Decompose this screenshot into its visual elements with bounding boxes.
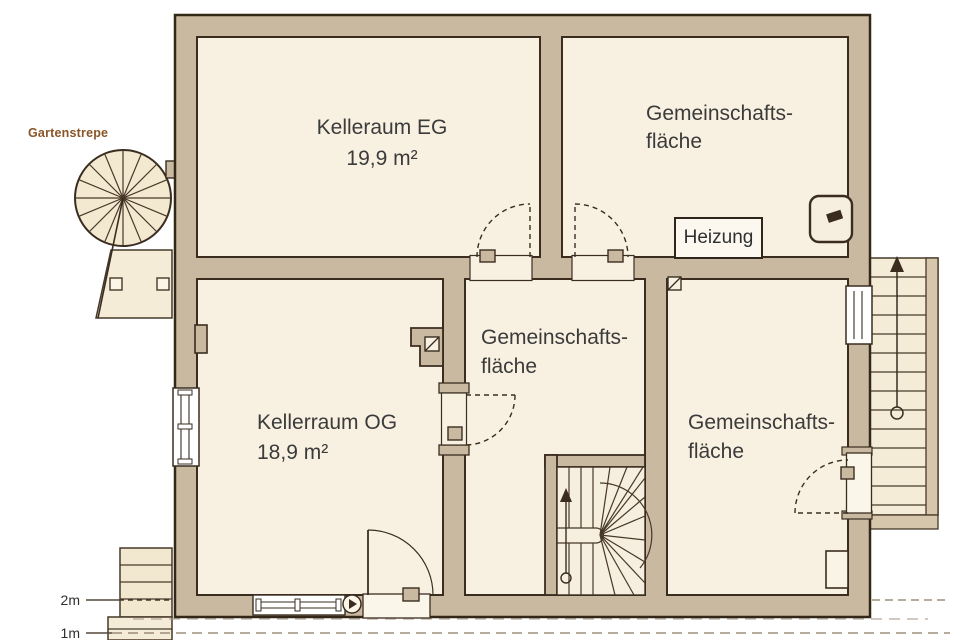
room-name: Kelleraum EG — [317, 112, 448, 143]
floorplan-drawing — [0, 0, 960, 640]
room-name-line2: fläche — [481, 352, 628, 381]
room-label-common-middle: Gemeinschafts- fläche — [481, 323, 628, 381]
room-label-kellerraum-og: Kellerraum OG 18,9 m² — [257, 408, 397, 468]
wall-pilaster — [195, 325, 207, 353]
straight-stairs-right-icon — [866, 256, 938, 529]
room-area: 18,9 m² — [257, 438, 397, 468]
floorplan-canvas: Gartenstrepe Kelleraum EG 19,9 m² Gemein… — [0, 0, 960, 640]
straight-stairs-left-icon — [108, 548, 172, 640]
room-label-kelleraum-eg: Kelleraum EG 19,9 m² — [317, 112, 448, 174]
room-name-line1: Gemeinschafts- — [688, 408, 835, 437]
room-name-line1: Gemeinschafts- — [646, 100, 793, 128]
room-name-line1: Gemeinschafts- — [481, 323, 628, 352]
flue-marker-right-room-icon — [668, 277, 681, 290]
room-label-common-top: Gemeinschafts- fläche — [646, 100, 793, 156]
room-name-line2: fläche — [646, 128, 793, 156]
wall-basin-icon — [810, 196, 852, 242]
window-bottom-icon — [253, 595, 345, 615]
window-right-icon — [846, 286, 872, 344]
room-name-line2: fläche — [688, 437, 835, 466]
heating-label: Heizung — [675, 218, 762, 258]
room-area: 19,9 m² — [317, 143, 448, 174]
window-left-icon — [173, 388, 199, 466]
garden-stair-label: Gartenstrepe — [28, 126, 108, 140]
room-name: Kellerraum OG — [257, 408, 397, 438]
room-label-common-right: Gemeinschafts- fläche — [688, 408, 835, 466]
winder-staircase-icon — [545, 455, 652, 595]
garden-ramp — [96, 250, 172, 318]
shaft-box — [826, 551, 848, 588]
scale-marker-1m: 1m — [48, 625, 80, 640]
drain-marker-icon — [343, 595, 361, 613]
scale-marker-2m: 2m — [48, 592, 80, 608]
